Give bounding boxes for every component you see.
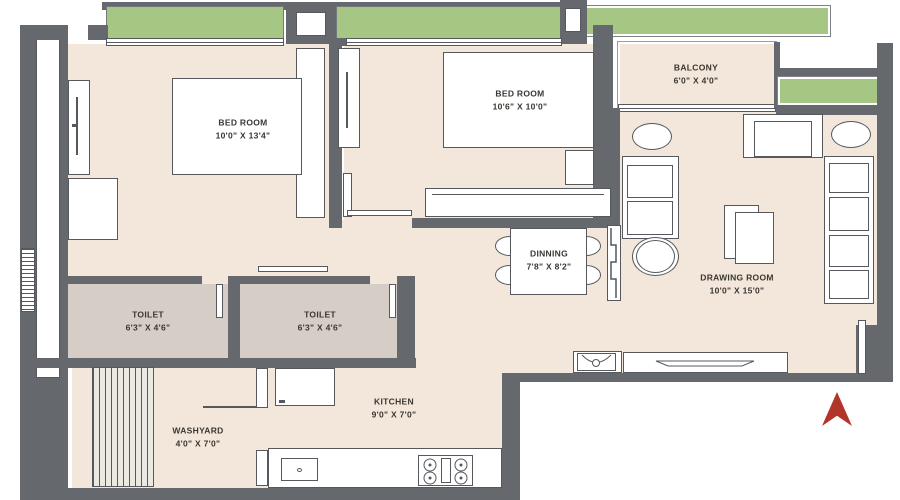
washyard-door-jamb-bottom xyxy=(256,450,268,486)
room-name: DINNING xyxy=(527,247,572,260)
room-name: TOILET xyxy=(298,308,343,321)
drawing-room-label: DRAWING ROOM 10'0" X 15'0" xyxy=(700,271,773,297)
drawing-bottom-wall xyxy=(502,373,893,382)
room-dims: 6'3" X 4'6" xyxy=(298,321,343,334)
room-name: KITCHEN xyxy=(372,395,417,408)
bedroom-2-label: BED ROOM 10'6" X 10'0" xyxy=(493,87,548,113)
bedroom-2-tv-icon xyxy=(346,72,348,128)
toilets-bottom-wall xyxy=(20,358,416,368)
room-dims: 9'0" X 7'0" xyxy=(372,408,417,421)
toilet-2-right-wall xyxy=(397,276,415,366)
drawing-round-table-top xyxy=(636,240,675,273)
sofa-cushion xyxy=(627,201,673,235)
fridge-handle xyxy=(279,400,285,403)
left-duct-shaft xyxy=(36,32,60,378)
washyard-label: WASHYARD 4'0" X 7'0" xyxy=(172,424,223,450)
toilet-1-top-wall xyxy=(62,276,202,284)
room-name: BALCONY xyxy=(674,61,719,74)
toilet-2-door-leaf xyxy=(389,284,396,318)
room-dims: 6'3" X 4'6" xyxy=(126,321,171,334)
washyard-louver-floor xyxy=(92,367,154,487)
bedroom-2-side-table xyxy=(565,150,594,185)
sofa-cushion xyxy=(829,163,869,193)
refrigerator xyxy=(275,368,335,406)
balcony-sliding-door xyxy=(618,104,776,112)
planter-strip-right xyxy=(778,77,885,105)
planter-strip-1 xyxy=(106,6,284,40)
north-arrow-icon xyxy=(822,392,852,426)
toilet-2-label: TOILET 6'3" X 4'6" xyxy=(298,308,343,334)
column-2-core xyxy=(565,8,581,32)
armchair-seat xyxy=(754,121,812,157)
sofa-cushion xyxy=(829,270,869,299)
bedroom-1-window xyxy=(106,38,284,46)
room-dims: 10'0" X 15'0" xyxy=(700,284,773,297)
balcony-label: BALCONY 6'0" X 4'0" xyxy=(674,61,719,87)
toilet-1-door-leaf xyxy=(216,284,223,318)
bedroom-1-tv-icon xyxy=(76,97,78,155)
bedroom-1-wardrobe-bottom xyxy=(68,178,118,240)
floor-plan: BED ROOM 10'0" X 13'4" BED ROOM 10'6" X … xyxy=(0,0,900,500)
room-dims: 4'0" X 7'0" xyxy=(172,437,223,450)
bottom-outer-wall xyxy=(20,488,520,500)
toilet-divider-wall xyxy=(228,276,240,358)
bedroom-2-dresser xyxy=(425,188,611,217)
column-1-core xyxy=(296,12,326,36)
bedroom-1-tv-bracket xyxy=(72,124,76,127)
room-name: BED ROOM xyxy=(493,87,548,100)
main-entrance-door-leaf xyxy=(858,320,866,374)
top-left-wall xyxy=(20,25,108,40)
room-dims: 10'6" X 10'0" xyxy=(493,100,548,113)
bedroom-2-window xyxy=(346,38,562,46)
planter-strip-2 xyxy=(336,6,562,40)
left-wall-louver xyxy=(21,248,35,312)
washyard-door-swing xyxy=(203,406,256,408)
dining-partition xyxy=(607,225,621,301)
drawing-center-table xyxy=(735,212,774,264)
right-outer-wall xyxy=(877,43,893,381)
bedroom-2-door-leaf xyxy=(347,210,412,216)
bedroom-1-tv-panel xyxy=(68,80,90,175)
room-name: BED ROOM xyxy=(216,116,271,129)
bedroom-1-label: BED ROOM 10'0" X 13'4" xyxy=(216,116,271,142)
drawing-planter-pot xyxy=(632,123,672,150)
balcony-side-top-wall xyxy=(776,68,877,77)
sofa-cushion xyxy=(829,197,869,231)
washyard-door-jamb-top xyxy=(256,368,268,408)
tv-console xyxy=(623,352,788,373)
kitchen-sink xyxy=(281,458,318,481)
top-left-notch xyxy=(68,25,88,40)
room-name: DRAWING ROOM xyxy=(700,271,773,284)
drawing-sofa-right xyxy=(824,156,874,304)
room-dims: 6'0" X 4'0" xyxy=(674,74,719,87)
drawing-left-wall xyxy=(611,108,620,225)
kitchen-label: KITCHEN 9'0" X 7'0" xyxy=(372,395,417,421)
sofa-cushion xyxy=(829,235,869,267)
bedroom-2-bottom-wall xyxy=(412,218,613,228)
kitchen-right-step-wall xyxy=(502,373,520,500)
toilet-1-label: TOILET 6'3" X 4'6" xyxy=(126,308,171,334)
room-dims: 10'0" X 13'4" xyxy=(216,129,271,142)
wash-basin-unit xyxy=(573,351,622,373)
bedroom-2-tv-panel xyxy=(338,48,360,148)
drawing-armchair xyxy=(743,114,823,158)
bedroom-1-door-leaf xyxy=(258,266,328,272)
dining-label: DINNING 7'8" X 8'2" xyxy=(527,247,572,273)
room-dims: 7'8" X 8'2" xyxy=(527,260,572,273)
gas-stove xyxy=(418,455,473,486)
room-name: TOILET xyxy=(126,308,171,321)
sofa-cushion xyxy=(627,165,673,198)
drawing-planter-pot xyxy=(831,121,871,148)
drawing-sofa-left xyxy=(622,156,679,239)
room-name: WASHYARD xyxy=(172,424,223,437)
toilet-2-top-wall xyxy=(240,276,370,284)
dresser-detail-line xyxy=(432,194,604,195)
sink-drain xyxy=(297,468,302,472)
